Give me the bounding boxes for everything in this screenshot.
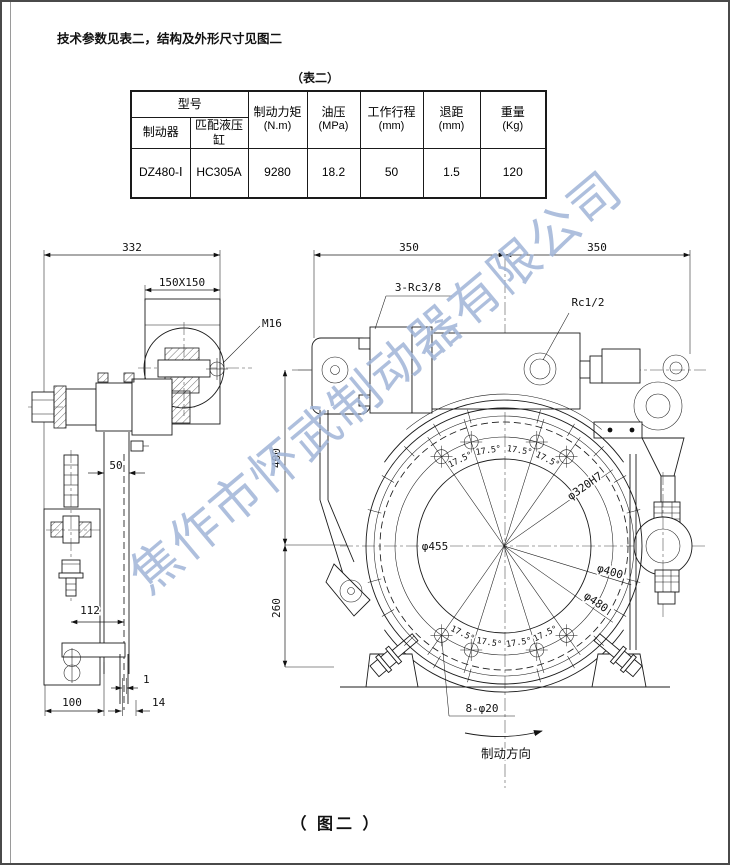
holes-label: 8-φ20 (465, 702, 498, 715)
catalog-page: 技术参数见表二，结构及外形尺寸见图二 （表二） 型号 制动力矩 (N.m) 油压… (0, 0, 730, 865)
dia-320-label: φ320H7 (565, 469, 605, 502)
dim-50-label: 50 (109, 459, 122, 472)
label-m16: M16 (262, 317, 282, 330)
angle-label: 17.5° (506, 444, 533, 458)
figure-caption: （ 图二 ） (266, 810, 406, 834)
dim-150x150-label: 150X150 (159, 276, 205, 289)
front-view: 350 350 3-Rc3/8 Rc1/2 (298, 241, 708, 788)
angle-label: 17.5° (476, 636, 503, 650)
angle-label: 17.5° (475, 444, 502, 458)
figure-2-drawing: 332 150X150 M16 (2, 2, 730, 865)
dim-400-label: 400 (270, 448, 283, 468)
dia-455-label: φ455 (422, 540, 449, 553)
dim-112-label: 112 (80, 604, 100, 617)
dim-350-right-label: 350 (587, 241, 607, 254)
direction-label: 制动方向 (481, 746, 531, 761)
angle-label: 17.5° (447, 450, 474, 470)
dim-260-label: 260 (270, 598, 283, 618)
label-3rc38: 3-Rc3/8 (395, 281, 441, 294)
dim-14-label: 14 (152, 696, 166, 709)
dim-100-label: 100 (62, 696, 82, 709)
angle-label: 17.5° (534, 450, 561, 470)
dim-332-label: 332 (122, 241, 142, 254)
dim-1-label: 1 (143, 673, 150, 686)
dia-480-label: φ480 (581, 589, 610, 615)
left-side-view: 332 150X150 M16 (28, 241, 282, 716)
label-rc12: Rc1/2 (571, 296, 604, 309)
dim-350-left-label: 350 (399, 241, 419, 254)
dia-400-label: φ400 (595, 562, 624, 582)
angle-label: 17.5° (505, 636, 532, 650)
